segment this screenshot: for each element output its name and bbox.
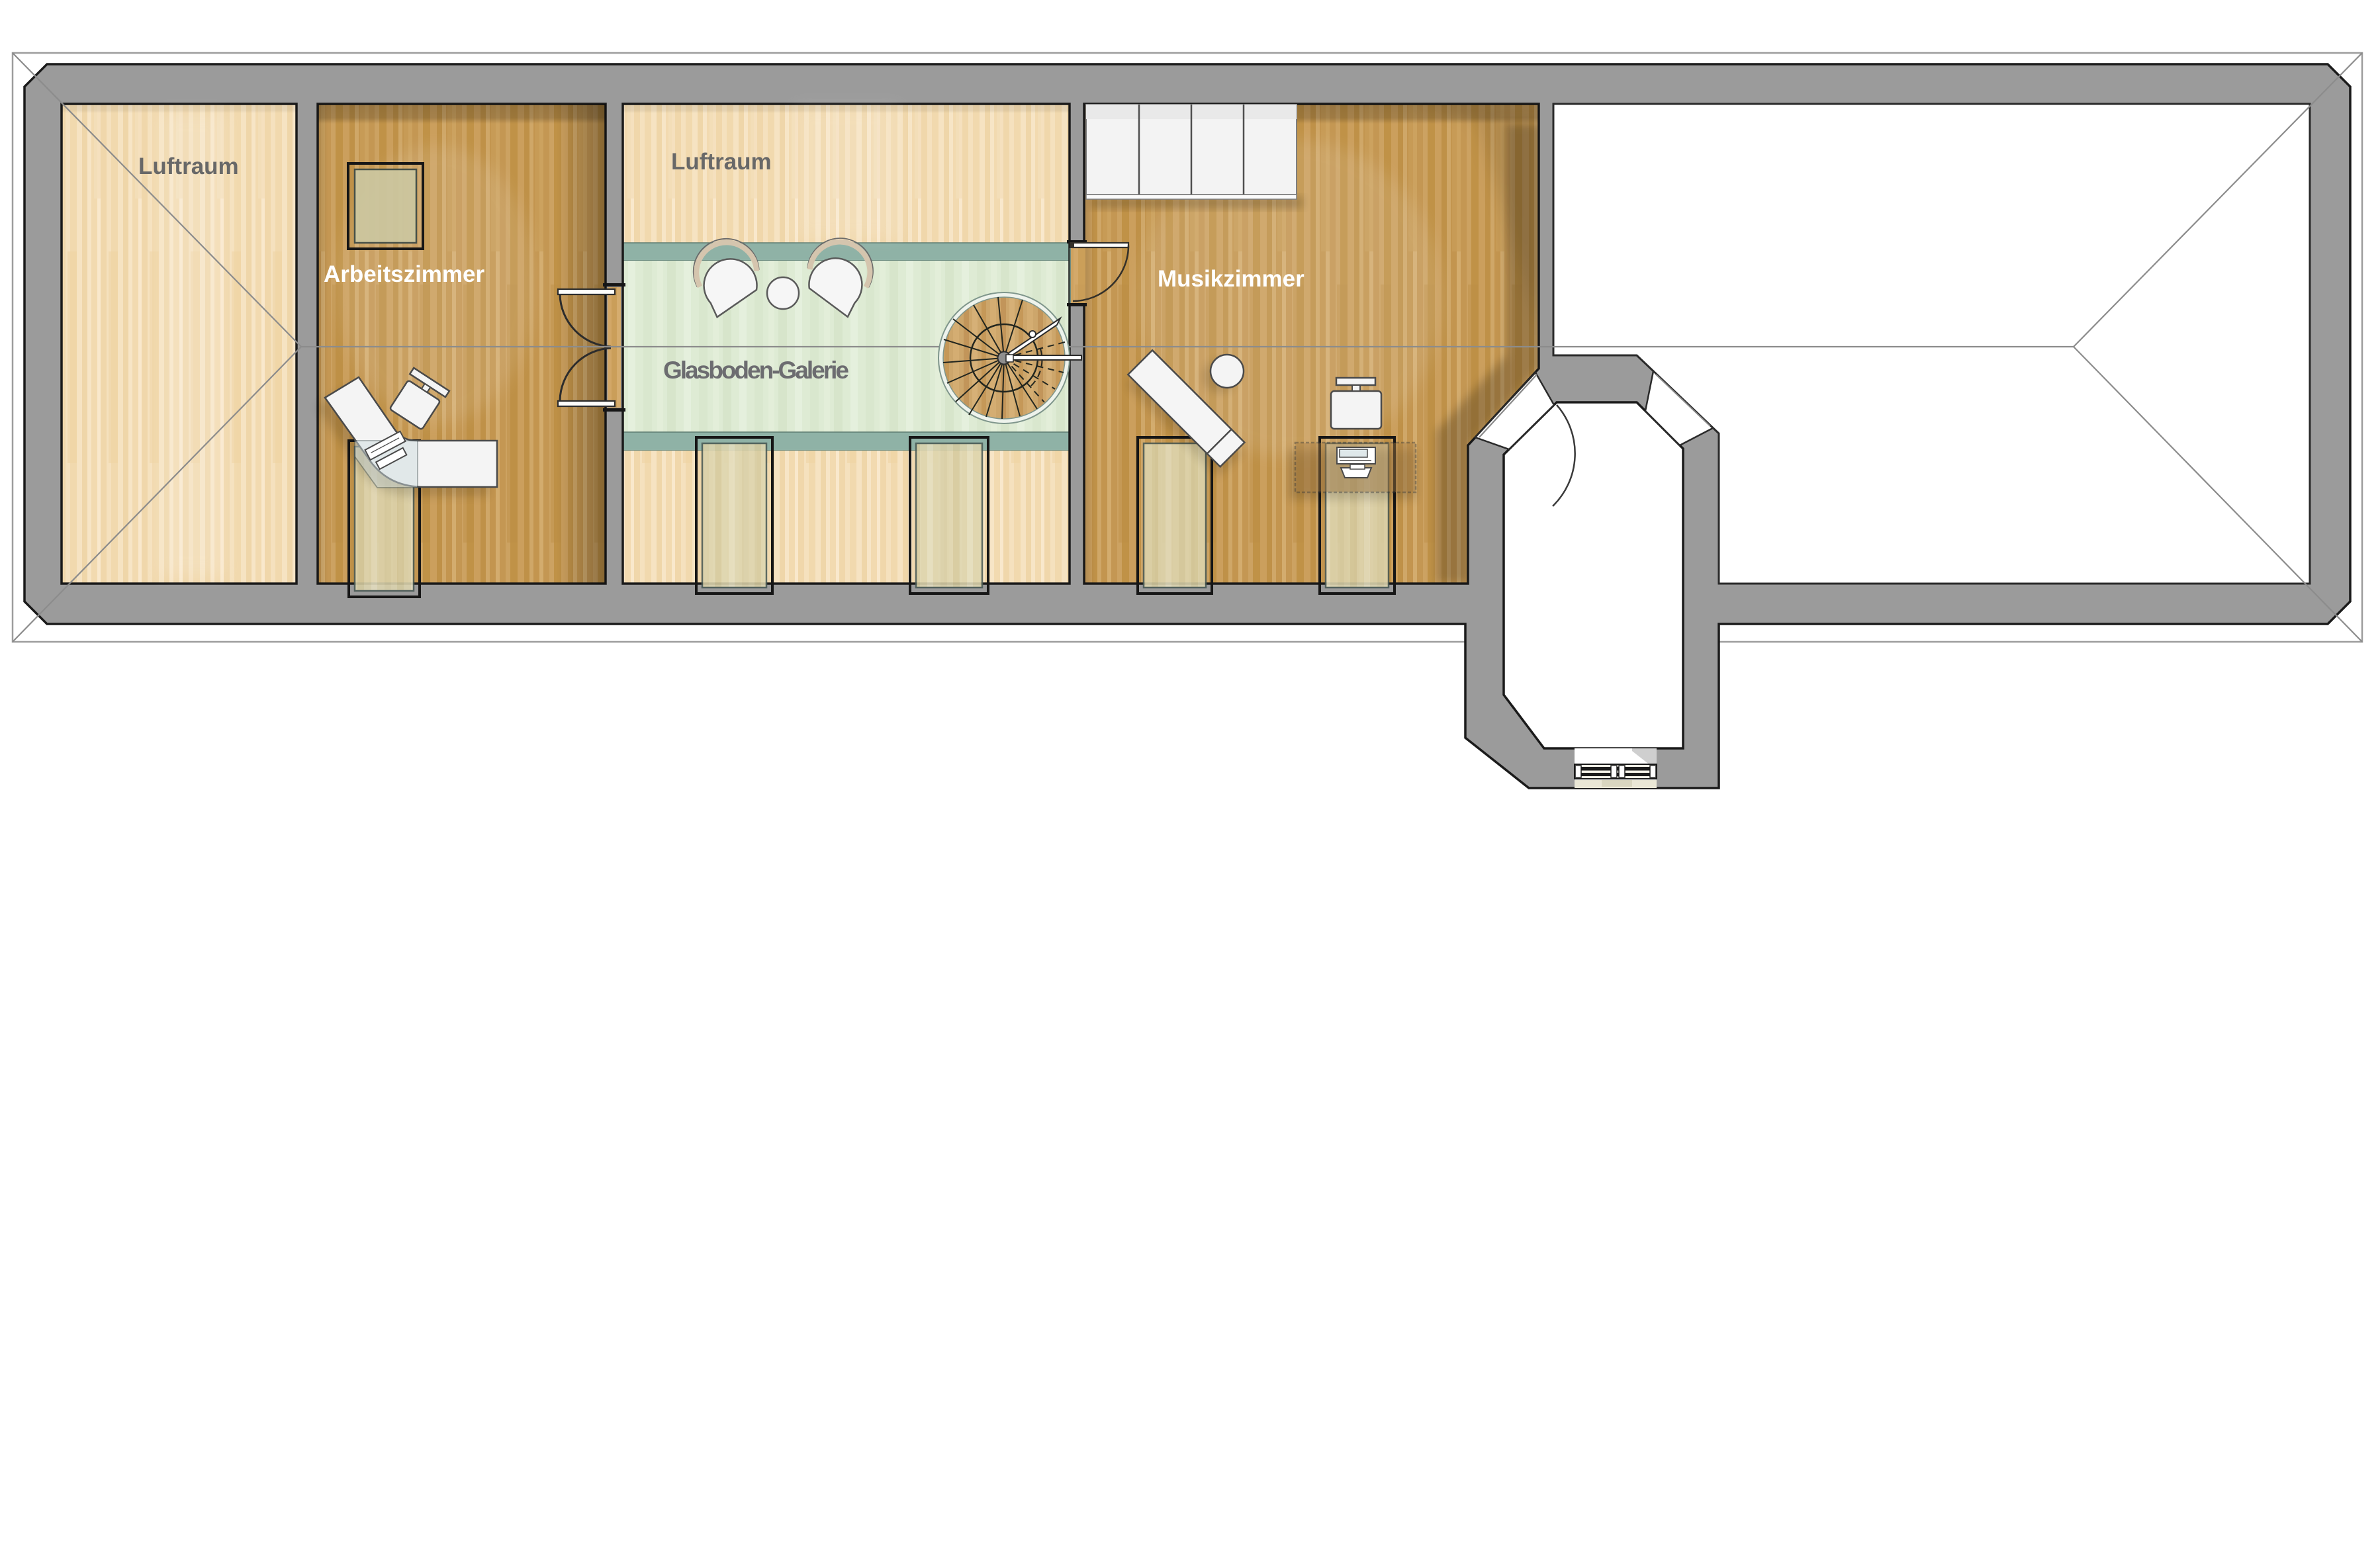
svg-text:Luftraum: Luftraum (671, 149, 772, 175)
svg-text:Glasboden-Galerie: Glasboden-Galerie (663, 357, 848, 384)
svg-text:Arbeitszimmer: Arbeitszimmer (324, 261, 485, 287)
svg-text:Luftraum: Luftraum (138, 154, 239, 179)
svg-text:Musikzimmer: Musikzimmer (1158, 266, 1304, 292)
